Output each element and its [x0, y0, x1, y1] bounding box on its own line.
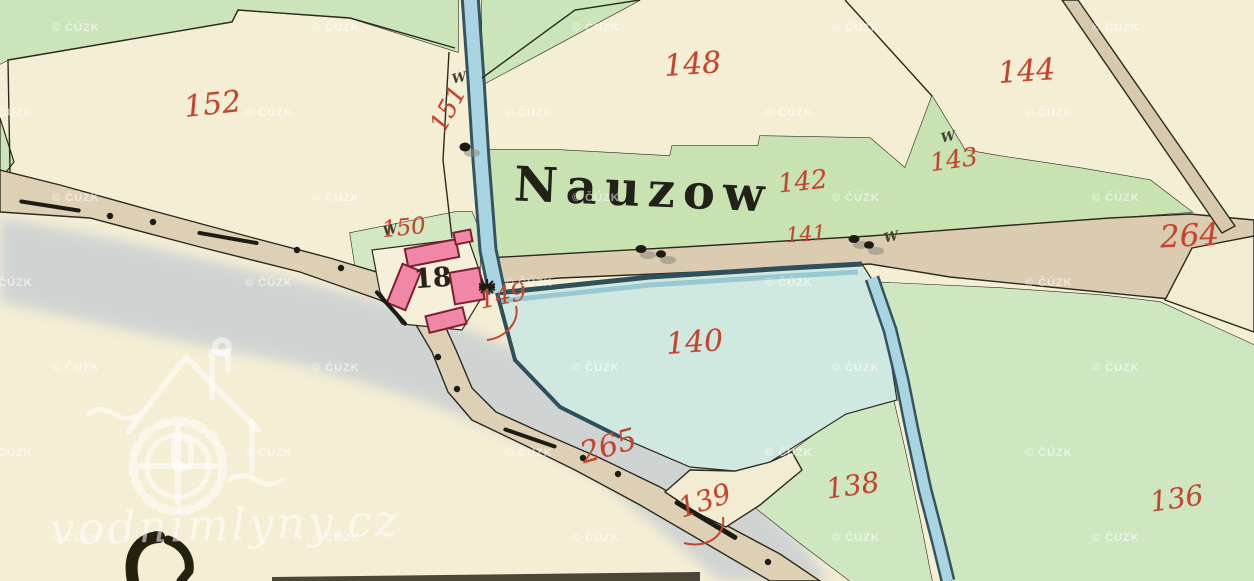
waterwheel-hub — [172, 460, 184, 472]
meadow-w-mark: W — [382, 223, 399, 239]
parcel-number-148: 148 — [663, 48, 722, 82]
parcel-number-136: 136 — [1148, 481, 1205, 516]
meadow-w-mark: W — [940, 130, 957, 146]
parcel-number-141: 141 — [785, 223, 826, 247]
vodnimlyny-watermark-text: vodnimlyny.cz — [49, 499, 401, 552]
meadow-w-mark: W — [451, 71, 468, 87]
parcel-number-140: 140 — [665, 326, 724, 360]
parcel-number-152: 152 — [183, 87, 243, 123]
parcel-number-138: 138 — [824, 468, 881, 503]
parcel-number-144: 144 — [997, 55, 1056, 89]
village-name-label: Nauzow — [513, 160, 773, 219]
house-number-label: 18 — [413, 264, 452, 294]
meadow-w-mark: W — [883, 230, 900, 246]
parcel-number-143: 143 — [928, 144, 979, 175]
cadastral-map-drawing — [0, 0, 1254, 581]
parcel-number-142: 142 — [777, 166, 829, 197]
parcel-number-264: 264 — [1159, 219, 1220, 253]
cadastral-map-viewport[interactable]: Nauzow 18 152 151 150 149 148 144 143 14… — [0, 0, 1254, 581]
building — [454, 229, 473, 244]
